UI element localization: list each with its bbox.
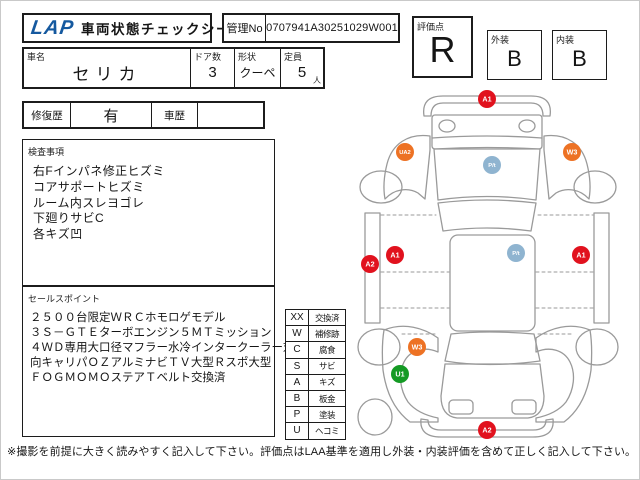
inspection-label: 検査事項 <box>28 147 64 157</box>
legend-row: B板金 <box>286 390 345 406</box>
taillight-right <box>512 400 536 414</box>
interior-grade-label: 内装 <box>556 33 574 46</box>
damage-marker: A1 <box>478 90 496 108</box>
legend-label: キズ <box>309 375 345 390</box>
svg-text:UA2: UA2 <box>399 150 411 156</box>
right-rear-wheel <box>576 329 618 365</box>
legend-label: 板金 <box>309 391 345 406</box>
headlight-right <box>519 120 535 132</box>
legend-row: P塗装 <box>286 406 345 422</box>
legend-row: C腐食 <box>286 341 345 357</box>
management-number-label: 管理No <box>224 15 266 41</box>
rear-panel-shape <box>441 364 544 418</box>
svg-text:W3: W3 <box>567 148 578 157</box>
right-rear-fender-shape <box>536 326 592 422</box>
svg-text:A2: A2 <box>365 260 374 269</box>
inspection-items: 右Fインパネ修正ヒズミコアサポートヒズミルーム内スレヨゴレ下廻りサビC各キズ凹 <box>33 164 269 243</box>
damage-marker: UA2 <box>396 143 414 161</box>
sales-points-box: セールスポイント ２５００台限定ＷＲＣホモロゲモデル３Ｓ－ＧＴＥターボエンジン５… <box>22 286 275 437</box>
inspection-item: 右Fインパネ修正ヒズミ <box>33 164 269 180</box>
inspection-box: 検査事項 右Fインパネ修正ヒズミコアサポートヒズミルーム内スレヨゴレ下廻りサビC… <box>22 139 275 286</box>
damage-marker: P/t <box>483 156 501 174</box>
repair-history-value: 有 <box>70 103 151 127</box>
sales-point-line: ４ＷＤ専用大口径マフラー水冷インタークーラー対 <box>30 341 269 356</box>
svg-text:U1: U1 <box>395 370 404 379</box>
legend-label: サビ <box>309 359 345 374</box>
svg-text:W3: W3 <box>412 343 423 352</box>
interior-grade-box: 内装 B <box>552 30 607 80</box>
inspection-item: 下廻りサビC <box>33 211 269 227</box>
capacity-cell: 定員 5 人 <box>280 49 323 87</box>
sales-point-line: ２５００台限定ＷＲＣホモロゲモデル <box>30 311 269 326</box>
damage-marker-layer: A1UA2W3P/tA2A1P/tA1W3U1A2 <box>361 90 590 439</box>
overall-grade-label: 評価点 <box>417 20 444 33</box>
header-logo-box: LAP 車両状態チェックシート <box>22 13 212 43</box>
sales-point-line: 向キャリパＯＺアルミナビＴＶ大型Ｒスポ大型 <box>30 356 269 371</box>
rear-window-shape <box>445 332 540 365</box>
exterior-grade-box: 外装 B <box>487 30 542 80</box>
damage-marker: A2 <box>361 255 379 273</box>
repair-history-label: 修復歴 <box>24 103 70 127</box>
damage-marker: A1 <box>386 246 404 264</box>
left-front-wheel <box>360 171 402 203</box>
svg-text:A2: A2 <box>482 426 491 435</box>
sales-points-label: セールスポイント <box>28 294 100 304</box>
right-sill-strip <box>594 213 609 323</box>
repair-history-row: 修復歴 有 車歴 <box>22 101 265 129</box>
legend-row: Aキズ <box>286 374 345 390</box>
body-shape-label: 形状 <box>238 50 256 63</box>
left-rear-wheel <box>358 329 400 365</box>
capacity-value: 5 <box>298 64 306 81</box>
legend-code: S <box>286 359 309 374</box>
headlight-left <box>439 120 455 132</box>
damage-marker: U1 <box>391 365 409 383</box>
legend-code: P <box>286 407 309 422</box>
damage-marker: A1 <box>572 246 590 264</box>
vehicle-name-label: 車名 <box>27 50 45 63</box>
windshield-shape <box>438 200 536 231</box>
legend-code: B <box>286 391 309 406</box>
legend-label: 補修跡 <box>309 326 345 341</box>
legend-row: Sサビ <box>286 358 345 374</box>
svg-text:A1: A1 <box>390 251 399 260</box>
legend-row: W補修跡 <box>286 325 345 341</box>
legend-row: XX交換済 <box>286 310 345 325</box>
door-count-cell: ドア数 3 <box>190 49 234 87</box>
damage-marker: W3 <box>563 143 581 161</box>
door-count-value: 3 <box>208 64 216 81</box>
car-diagram-svg: A1UA2W3P/tA2A1P/tA1W3U1A2 <box>348 86 626 446</box>
legend-code: U <box>286 423 309 438</box>
body-shape-cell: 形状 クーペ <box>234 49 280 87</box>
management-number-value: 0707941A30251029W001 <box>266 15 398 41</box>
body-shape-value: クーペ <box>239 64 275 81</box>
legend-label: ヘコミ <box>309 423 345 438</box>
capacity-label: 定員 <box>284 50 302 63</box>
vehicle-info-table: 車名 セリカ ドア数 3 形状 クーペ 定員 5 人 <box>22 47 325 89</box>
legend-table: XX交換済W補修跡C腐食SサビAキズB板金P塗装Uヘコミ <box>285 309 346 440</box>
damage-marker: W3 <box>408 338 426 356</box>
left-rear-fender-shape <box>382 326 438 422</box>
svg-text:A1: A1 <box>576 251 585 260</box>
legend-code: C <box>286 342 309 357</box>
door-count-label: ドア数 <box>194 50 221 63</box>
legend-label: 塗装 <box>309 407 345 422</box>
vehicle-name-value: セリカ <box>73 60 142 85</box>
taillight-left <box>449 400 473 414</box>
damage-marker: P/t <box>507 244 525 262</box>
inspection-item: ルーム内スレヨゴレ <box>33 196 269 212</box>
inspection-item: 各キズ凹 <box>33 227 269 243</box>
legend-code: A <box>286 375 309 390</box>
management-number-box: 管理No 0707941A30251029W001 <box>222 13 400 43</box>
legend-label: 交換済 <box>309 310 345 325</box>
legend-code: XX <box>286 310 309 325</box>
sales-point-line: ３Ｓ－ＧＴＥターボエンジン５ＭＴミッション <box>30 326 269 341</box>
legend-code: W <box>286 326 309 341</box>
overall-grade-box: 評価点 R <box>412 16 473 78</box>
car-history-label: 車歴 <box>151 103 197 127</box>
vehicle-name-cell: 車名 セリカ <box>24 49 190 87</box>
legend-row: Uヘコミ <box>286 422 345 438</box>
hood-shape <box>434 148 540 201</box>
damage-marker: A2 <box>478 421 496 439</box>
legend-label: 腐食 <box>309 342 345 357</box>
svg-text:P/t: P/t <box>512 251 519 257</box>
lap-logo: LAP <box>29 17 75 40</box>
inspection-item: コアサポートヒズミ <box>33 180 269 196</box>
footer-note: ※撮影を前提に大きく読みやすく記入して下さい。評価点はLAA基準を適用し外装・内… <box>7 443 637 459</box>
capacity-unit: 人 <box>313 75 321 86</box>
car-history-value <box>197 103 263 127</box>
spare-tire-circle <box>358 399 392 435</box>
right-front-wheel <box>574 171 616 203</box>
exterior-grade-label: 外装 <box>491 33 509 46</box>
sales-point-line: ＦＯＧＭＯＭＯステアＴベルト交換済 <box>30 371 269 386</box>
svg-text:A1: A1 <box>482 95 491 104</box>
svg-text:P/t: P/t <box>488 163 495 169</box>
sales-points-lines: ２５００台限定ＷＲＣホモロゲモデル３Ｓ－ＧＴＥターボエンジン５ＭＴミッション４Ｗ… <box>30 311 269 386</box>
